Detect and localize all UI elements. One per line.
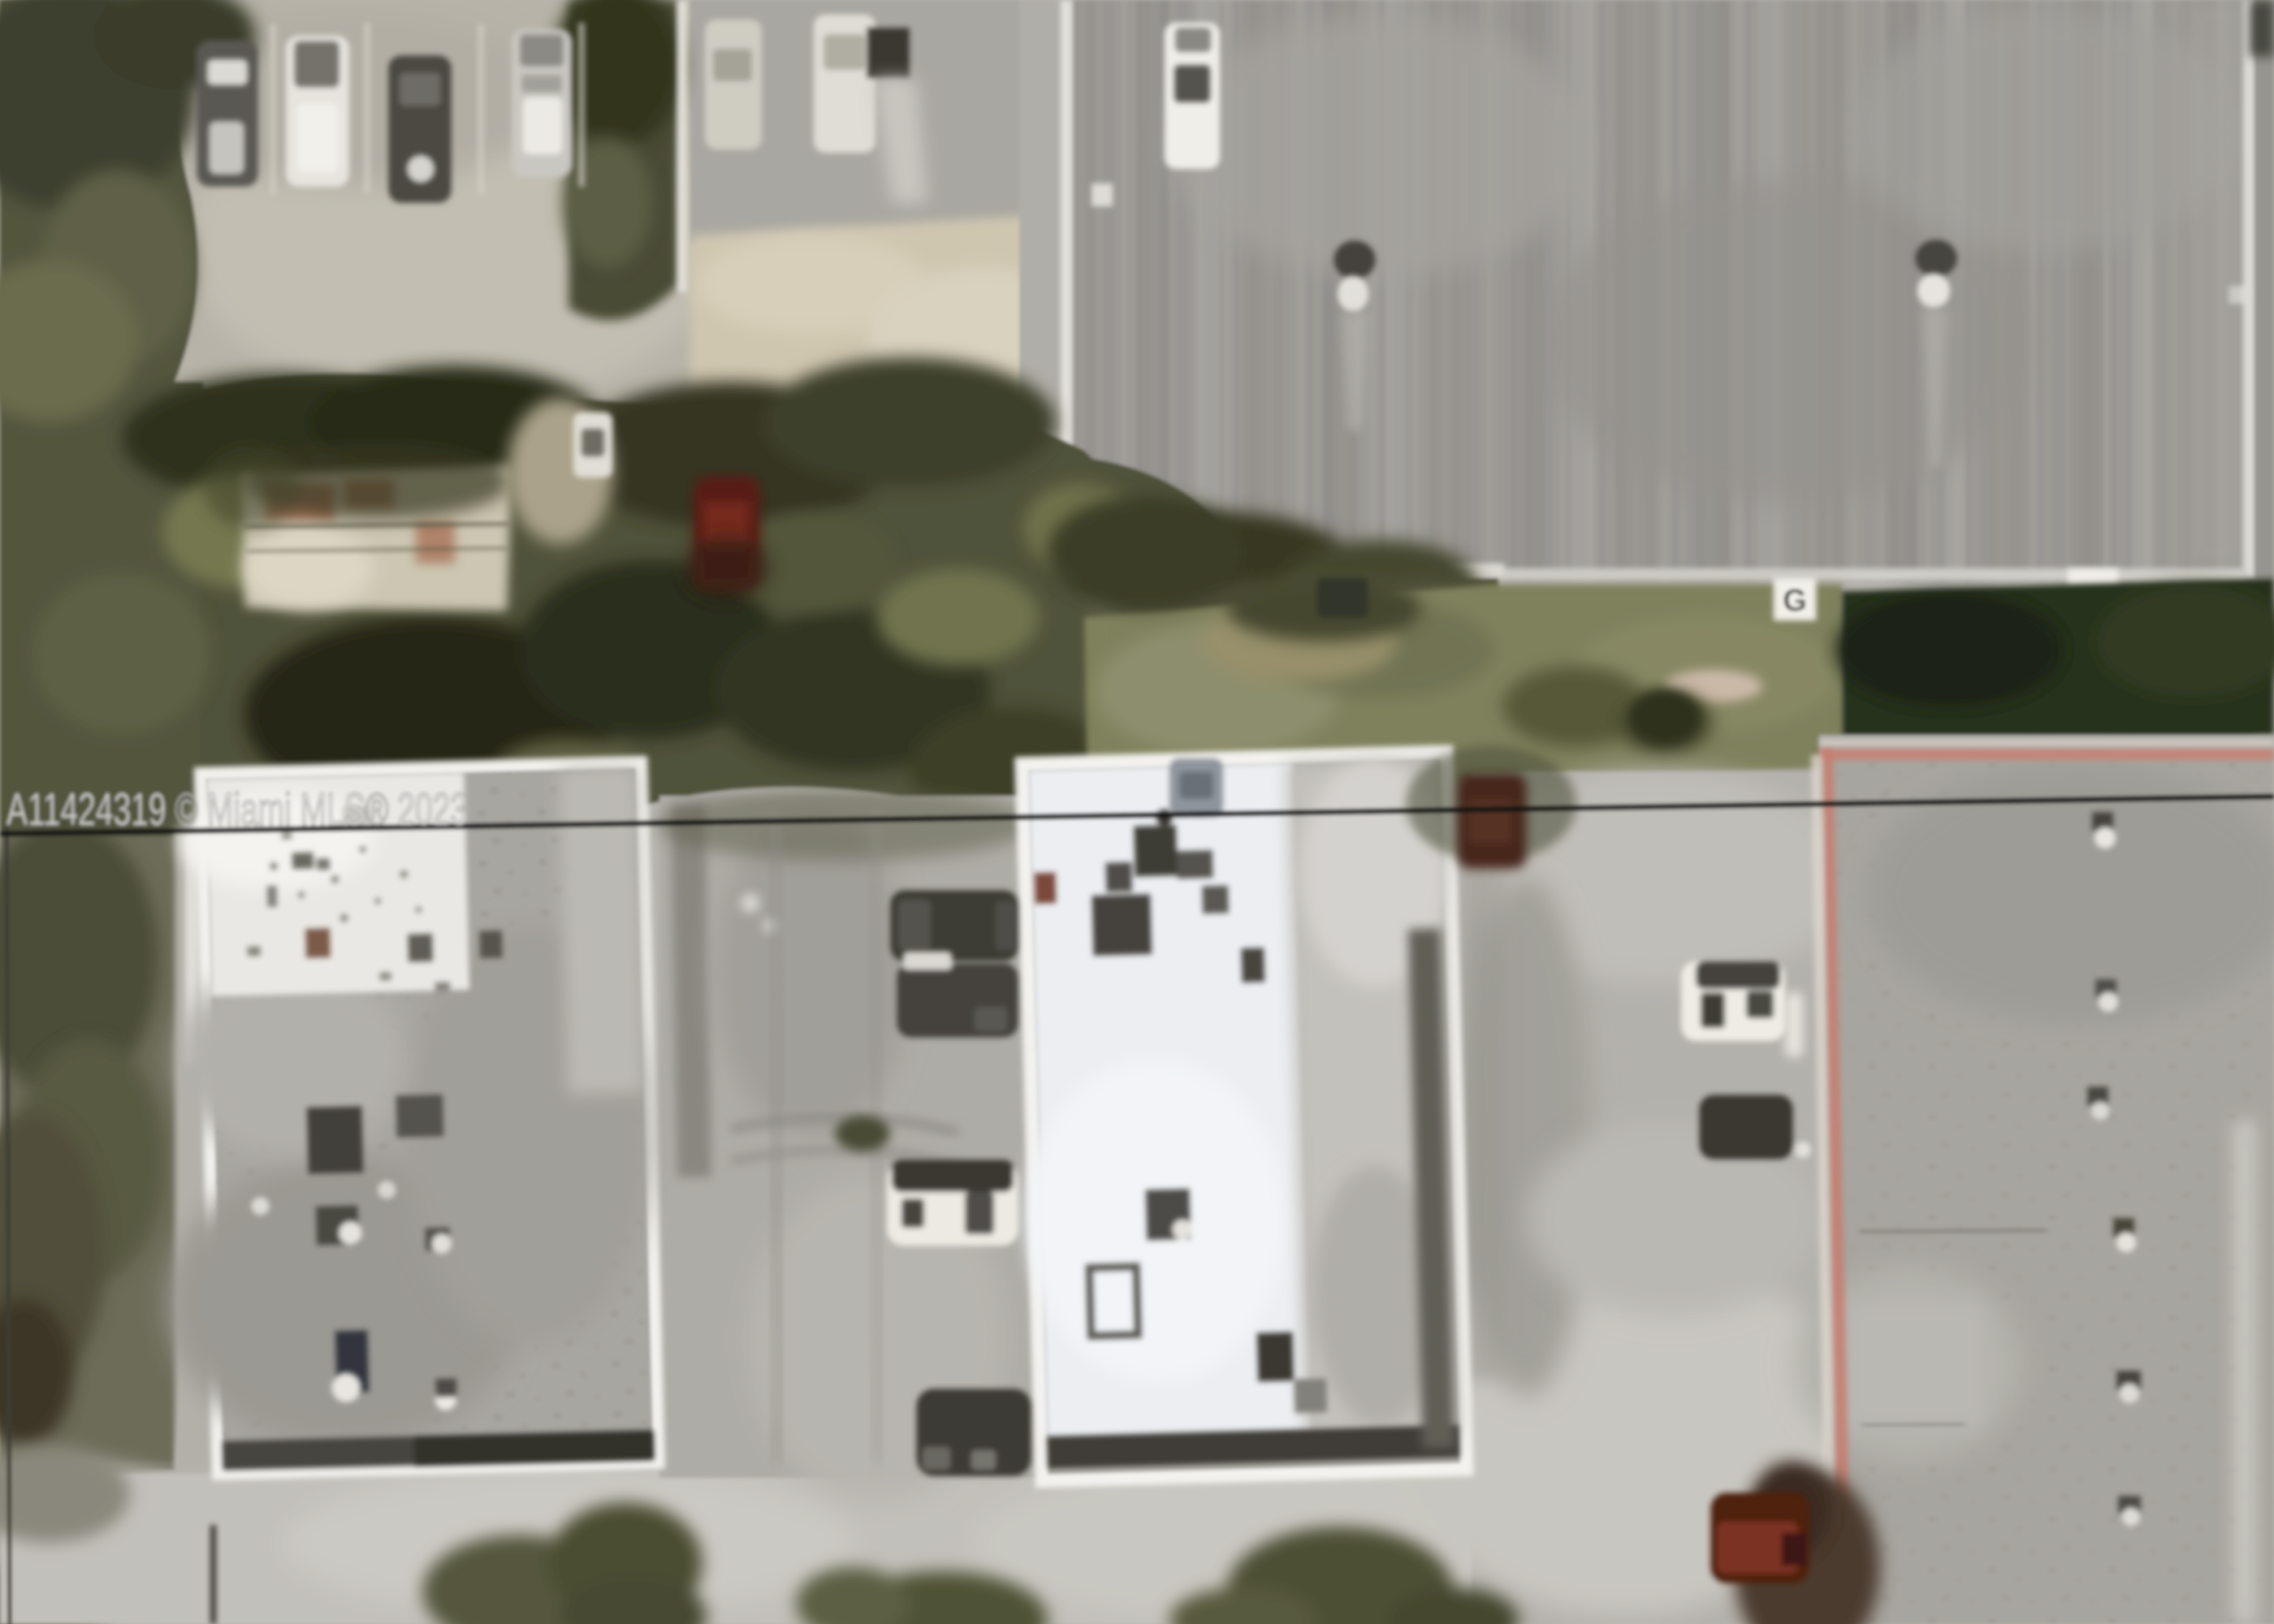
svg-text:A11424319 © Miami MLS® 2023: A11424319 © Miami MLS® 2023	[6, 784, 468, 836]
svg-text:G: G	[1783, 584, 1807, 618]
